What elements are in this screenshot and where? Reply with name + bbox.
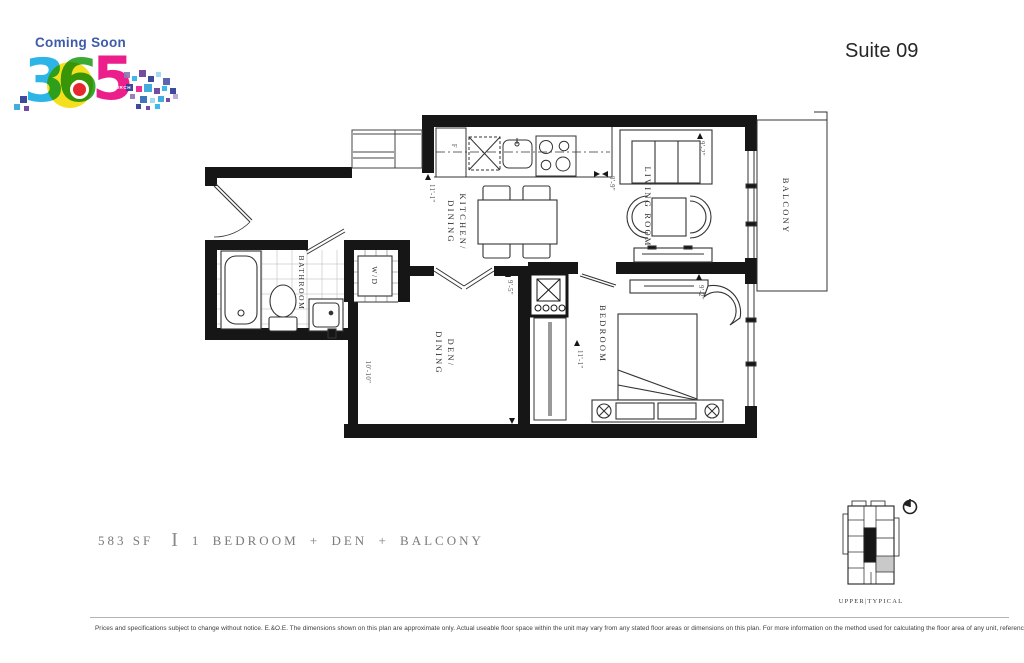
- wd-label: W/D: [370, 266, 379, 285]
- key-plan-caption: UPPER|TYPICAL: [839, 598, 904, 605]
- living-room-label: LIVING ROOM: [643, 166, 653, 247]
- area-text: 583 SF: [98, 533, 153, 549]
- utility-closet: [530, 274, 567, 316]
- bathtub-icon: [221, 251, 261, 329]
- armchairs: [627, 196, 711, 238]
- kitchen-label-2: DINING: [446, 200, 456, 243]
- summary-divider: I: [171, 529, 178, 552]
- dim-den-height: 10'-10": [364, 361, 371, 384]
- entry-door: [214, 184, 252, 237]
- bedroom-label: BEDROOM: [598, 305, 608, 363]
- bathroom-label: BATHROOM: [297, 256, 306, 311]
- bed: [592, 314, 723, 422]
- brochure-page: Coming Soon 3 6 5 CHURCH Suite 09: [0, 0, 1024, 663]
- den-french-doors: [434, 268, 494, 289]
- dim-living-width: 8'-9": [608, 176, 615, 191]
- balcony-outline: [757, 112, 827, 291]
- bedroom-door: [580, 274, 616, 287]
- lamp-icon: [705, 404, 719, 418]
- balcony-label: BALCONY: [781, 178, 791, 235]
- fridge-label: F: [450, 144, 457, 148]
- sink-icon: [503, 138, 532, 168]
- stove-icon: [536, 136, 576, 176]
- lamp-icon: [597, 404, 611, 418]
- dim-living-depth: 9'-2": [698, 141, 705, 156]
- dishwasher-icon: [469, 137, 500, 170]
- dim-bedroom-width: 9'-2": [697, 285, 704, 300]
- disclaimer-text: Prices and specifications subject to cha…: [95, 625, 1020, 632]
- suite-summary: 583 SF I 1 BEDROOM + DEN + BALCONY: [98, 529, 484, 552]
- entry-closet: [352, 130, 422, 168]
- suite-type-text: 1 BEDROOM + DEN + BALCONY: [192, 533, 484, 549]
- north-arrow-icon: [904, 499, 917, 514]
- dim-bedroom-height: 11'-1": [576, 350, 583, 369]
- floorplan-drawing: F: [0, 0, 1024, 663]
- bathroom-door: [306, 229, 345, 254]
- dresser: [630, 280, 708, 293]
- dim-den-width: 9'-5": [506, 280, 513, 295]
- key-plan: [843, 501, 899, 584]
- dim-kitchen: 11'-1": [428, 184, 435, 203]
- bedroom-closet: [534, 318, 566, 420]
- footer-rule: [90, 617, 1009, 618]
- kitchen-counter: [434, 127, 612, 177]
- tv-console: [634, 246, 712, 262]
- logo-church-label: CHURCH: [108, 85, 131, 90]
- den-label-1: DEN/: [446, 339, 456, 368]
- toilet-icon: [269, 285, 297, 331]
- kitchen-label-1: KITCHEN/: [458, 193, 468, 250]
- den-label-2: DINING: [434, 331, 444, 374]
- dining-table: [478, 186, 557, 258]
- bedroom-chair: [704, 285, 741, 325]
